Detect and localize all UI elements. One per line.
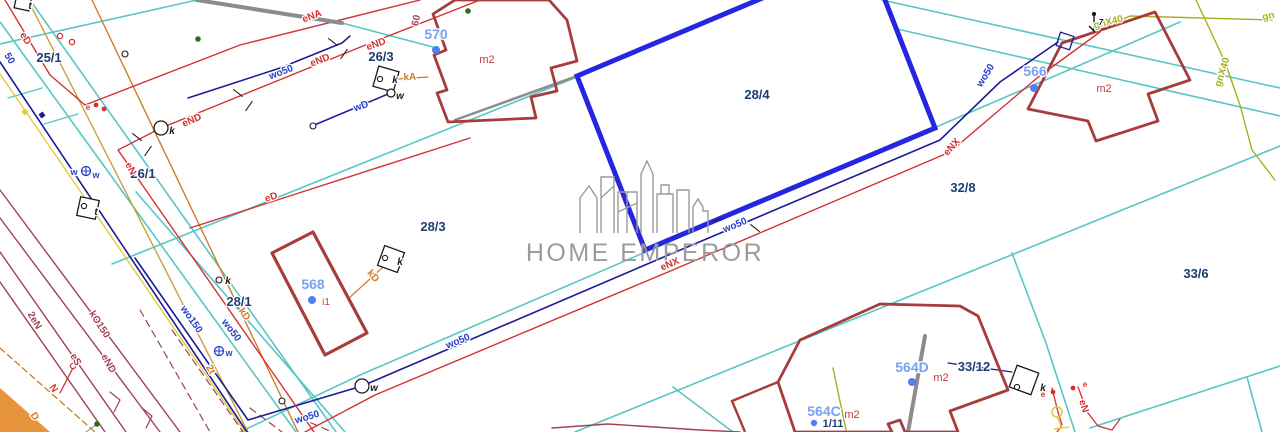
building-number-label: 568 [301,276,325,292]
building-type-label: m2 [844,409,859,421]
power-line-label: e [1083,380,1088,389]
electric-point-icon [57,33,62,38]
point-marker [94,421,100,427]
building-number-label: 564D [895,359,928,375]
point-marker [908,378,916,386]
building-type-label: m2 [1096,83,1111,95]
building-number-label: 564C [807,403,840,419]
map-background [0,0,1280,432]
symbol-letter-label: k [169,126,175,137]
survey-point-icon [377,76,382,81]
building-number-label: 570 [424,26,448,42]
building-type-label: m2 [479,54,494,66]
point-marker [811,420,817,426]
survey-point-icon [81,203,86,208]
gas-valve-dot-icon [1092,12,1096,16]
point-marker [308,296,316,304]
survey-point-icon [382,255,387,260]
symbol-letter-label: k [1040,383,1046,394]
symbol-letter-label: w [370,383,379,394]
cadastral-map[interactable]: HOME EMPEROR 25/126/326/128/328/428/132/… [0,0,1280,432]
manhole-icon [355,379,369,393]
cadastral-map-viewport[interactable]: HOME EMPEROR 25/126/326/128/328/428/132/… [0,0,1280,432]
manhole-icon [387,89,395,97]
parcel-number-label: 25/1 [36,50,61,65]
parcel-number-label: 28/1 [226,294,251,309]
symbol-letter-label: 7 [1099,18,1104,27]
parcel-number-label: 1/11 [823,418,844,430]
survey-point-icon [310,123,316,129]
survey-point-icon [122,51,128,57]
point-marker [1030,84,1038,92]
symbol-letter-label: w [396,91,405,102]
manhole-icon [154,121,168,135]
parcel-number-label: 32/8 [950,180,975,195]
point-marker [102,107,107,112]
water-line-label: w [91,170,100,180]
point-marker [94,103,99,108]
survey-point-icon [216,277,222,283]
point-marker [195,36,201,42]
survey-point-icon [1014,384,1019,389]
watermark-title: HOME EMPEROR [526,239,764,267]
parcel-number-label: 33/12 [958,359,991,374]
point-marker [432,46,440,54]
symbol-letter-label: k [397,257,403,268]
point-marker [1071,386,1076,391]
survey-point-icon [279,398,285,404]
building-type-label: m2 [933,372,948,384]
parcel-number-label: 28/3 [420,219,445,234]
building-type-label: i1 [322,297,330,308]
point-marker [465,8,471,14]
point-marker [1051,390,1056,395]
parcel-number-label: 33/6 [1183,266,1208,281]
symbol-letter-label: k [392,75,398,86]
building-number-label: 566 [1023,63,1047,79]
duct-line-label: kA [403,72,416,84]
power-line-label: e [86,103,91,112]
symbol-letter-label: k [225,276,231,287]
water-line-label: w [69,167,78,177]
water-line-label: w [224,348,233,358]
parcel-number-label: 28/4 [744,87,770,102]
electric-point-icon [69,39,74,44]
